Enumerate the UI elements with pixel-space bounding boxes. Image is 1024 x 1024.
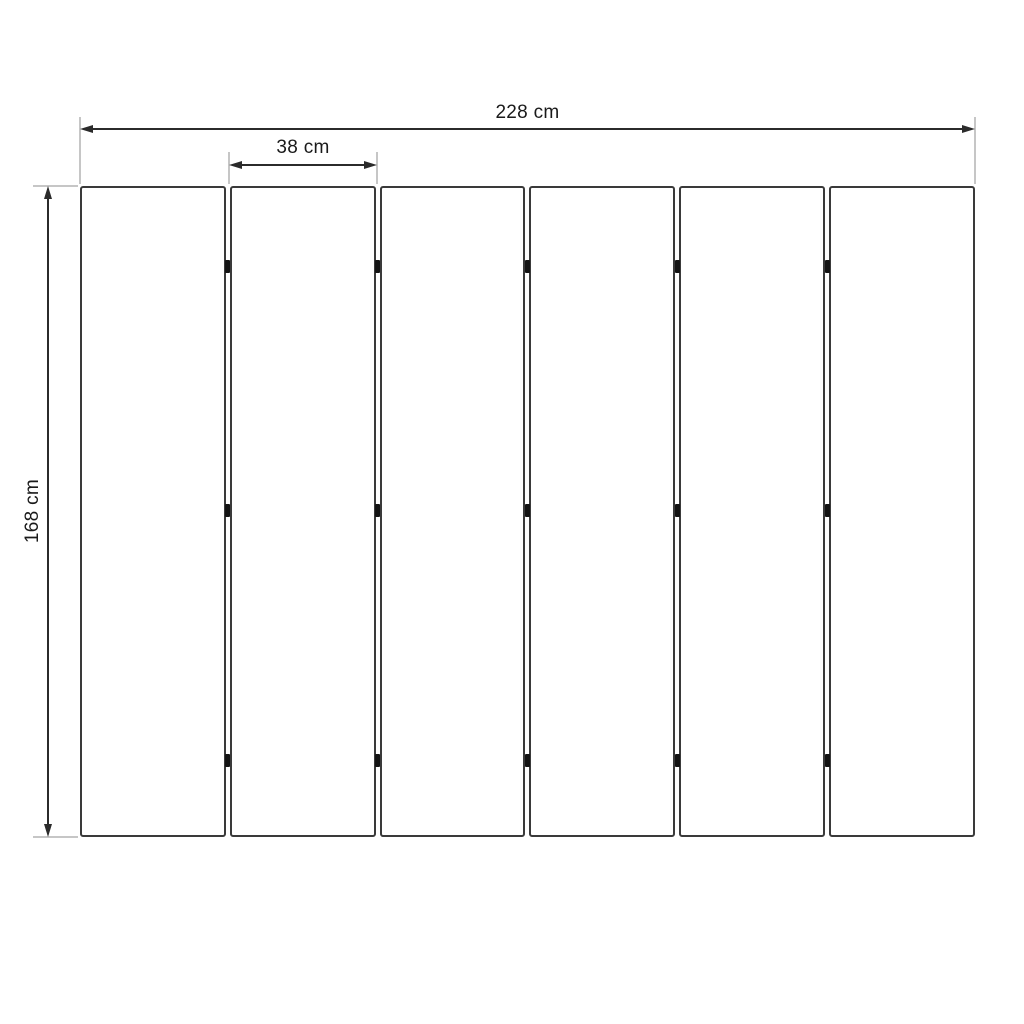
hinge-mark bbox=[825, 504, 830, 517]
panel bbox=[529, 186, 675, 837]
panel-width-label: 38 cm bbox=[229, 136, 377, 160]
height-label: 168 cm bbox=[21, 451, 45, 571]
hinge-mark bbox=[375, 260, 380, 273]
hinge-mark bbox=[675, 260, 680, 273]
panel bbox=[679, 186, 825, 837]
hinge-mark bbox=[525, 260, 530, 273]
total-width-dimension-line bbox=[80, 125, 975, 133]
total-width-label: 228 cm bbox=[80, 101, 975, 125]
hinge-mark bbox=[225, 754, 230, 767]
diagram-canvas: 228 cm 38 cm 168 cm bbox=[0, 0, 1024, 1024]
hinge-mark bbox=[525, 504, 530, 517]
hinge-mark bbox=[675, 504, 680, 517]
hinge-mark bbox=[375, 754, 380, 767]
hinge-mark bbox=[825, 260, 830, 273]
hinge-mark bbox=[225, 260, 230, 273]
panel bbox=[80, 186, 226, 837]
panel bbox=[230, 186, 376, 837]
hinge-mark bbox=[525, 754, 530, 767]
hinge-mark bbox=[225, 504, 230, 517]
panel-width-dimension-line bbox=[229, 161, 377, 169]
height-dimension-line bbox=[44, 186, 52, 837]
hinge-mark bbox=[825, 754, 830, 767]
panel bbox=[380, 186, 526, 837]
hinge-mark bbox=[375, 504, 380, 517]
panel bbox=[829, 186, 975, 837]
hinge-mark bbox=[675, 754, 680, 767]
